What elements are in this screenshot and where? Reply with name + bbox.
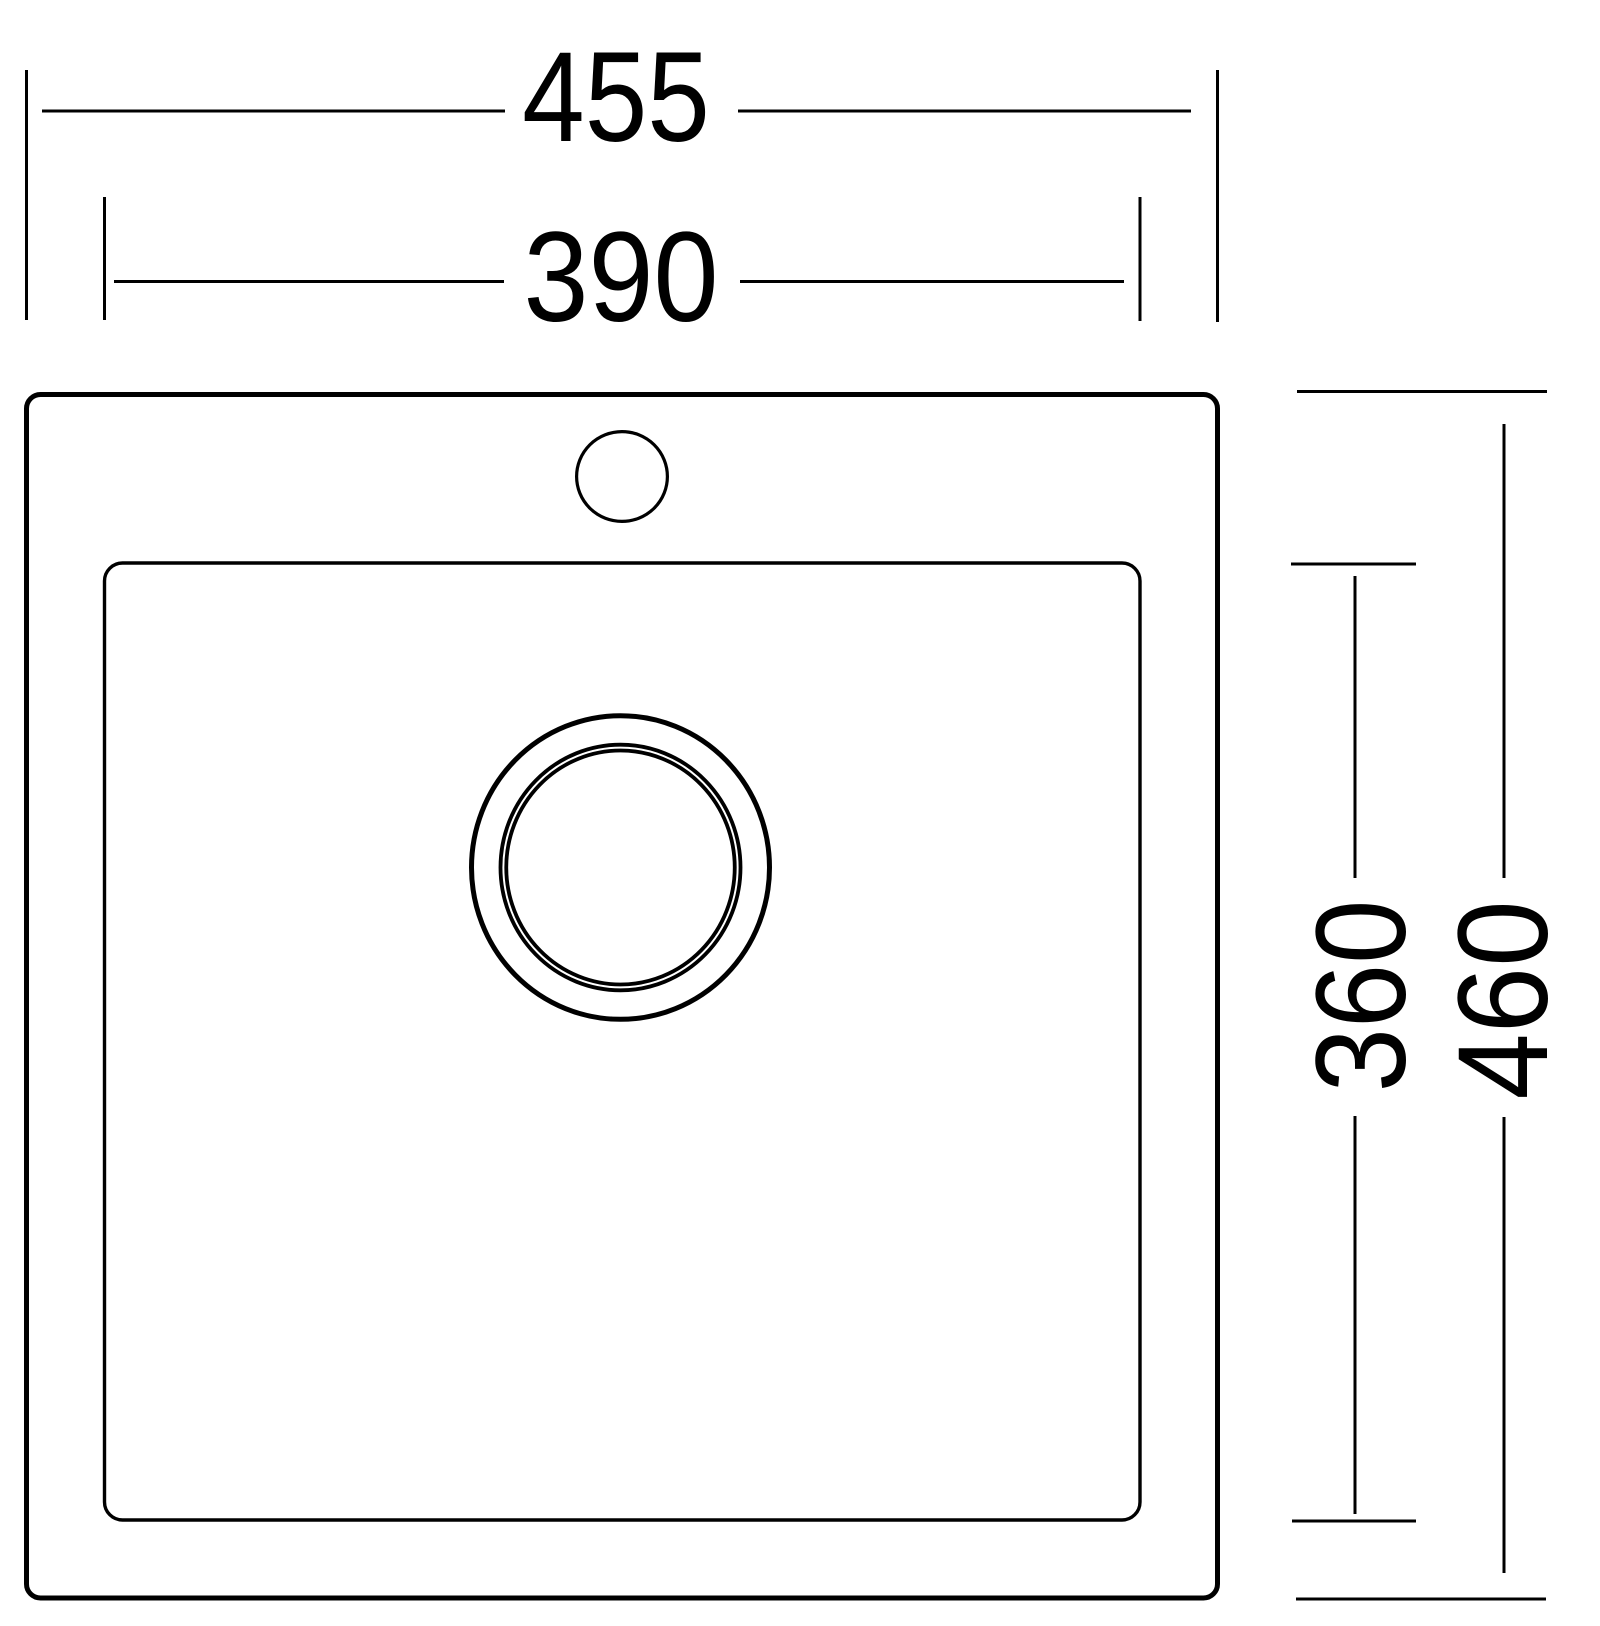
svg-text:455: 455 <box>522 25 710 168</box>
svg-text:460: 460 <box>1432 900 1575 1099</box>
svg-text:390: 390 <box>524 205 719 348</box>
svg-text:360: 360 <box>1290 900 1433 1093</box>
